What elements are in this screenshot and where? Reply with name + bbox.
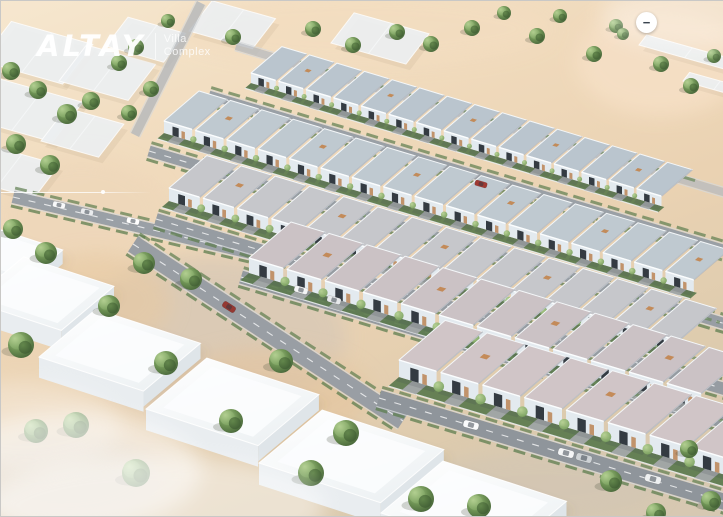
- yard-tree: [467, 144, 472, 149]
- entry-door: [494, 393, 502, 408]
- front-wood-panel: [542, 164, 545, 171]
- tree-shade: [430, 41, 438, 49]
- entry-door: [580, 249, 586, 260]
- tree: [117, 105, 137, 121]
- tree-shade: [14, 141, 24, 151]
- tree: [158, 14, 176, 28]
- front-wood-panel: [213, 141, 216, 149]
- front-wood-panel: [590, 424, 595, 436]
- front-wood-panel: [459, 140, 462, 147]
- yard-tree: [517, 406, 528, 417]
- front-wood-panel: [487, 148, 490, 155]
- yard-tree: [318, 288, 327, 297]
- front-wood-panel: [370, 188, 373, 196]
- tree: [550, 9, 568, 23]
- front-wood-panel: [652, 272, 655, 280]
- tree-shade: [44, 249, 55, 260]
- yard-tree: [629, 268, 635, 274]
- entry-door: [619, 430, 627, 445]
- yard-tree: [472, 221, 478, 227]
- entry-door: [369, 111, 375, 120]
- front-wood-panel: [188, 199, 192, 208]
- tree-shade: [36, 87, 45, 96]
- front-wood-panel: [346, 293, 350, 303]
- entry-door: [703, 455, 711, 470]
- entry-door: [517, 230, 523, 241]
- front-wood-panel: [422, 374, 427, 386]
- front-wood-panel: [569, 173, 572, 180]
- front-wood-panel: [625, 189, 628, 196]
- yard-tree: [347, 183, 353, 189]
- front-wood-panel: [384, 305, 388, 315]
- tree-shade: [477, 502, 489, 514]
- front-wood-panel: [548, 411, 553, 423]
- entry-door: [173, 127, 179, 138]
- front-wood-panel: [377, 115, 380, 122]
- tree-shade: [312, 26, 320, 34]
- entry-door: [617, 185, 622, 194]
- tree: [1, 134, 26, 154]
- front-wood-panel: [404, 123, 407, 130]
- tree-shade: [11, 226, 21, 236]
- tree-shade: [229, 417, 241, 429]
- tree-shade: [164, 359, 176, 371]
- yard-tree: [378, 193, 384, 199]
- yard-tree: [302, 94, 307, 99]
- front-wood-panel: [270, 270, 274, 280]
- tree-shade: [309, 469, 322, 482]
- yard-tree: [394, 311, 403, 320]
- entry-door: [549, 239, 555, 250]
- front-wood-panel: [182, 131, 185, 139]
- yard-tree: [253, 155, 259, 161]
- tree: [641, 503, 666, 516]
- front-wood-panel: [322, 98, 325, 105]
- front-wood-panel: [266, 82, 269, 89]
- front-wood-panel: [631, 437, 636, 449]
- yard-tree: [190, 136, 196, 142]
- entry-door: [578, 418, 586, 433]
- tree-shade: [660, 61, 668, 69]
- yard-tree: [577, 177, 582, 182]
- yard-tree: [266, 225, 274, 233]
- front-wood-panel: [589, 253, 592, 261]
- yard-tree: [439, 135, 444, 140]
- tree-shade: [128, 110, 136, 118]
- yard-tree: [475, 394, 486, 405]
- entry-door: [361, 183, 367, 194]
- entry-door: [267, 155, 273, 166]
- yard-tree: [357, 111, 362, 116]
- front-wood-panel: [349, 106, 352, 113]
- tree-shade: [709, 498, 719, 508]
- tree-shade: [396, 29, 404, 37]
- front-wood-panel: [464, 386, 469, 398]
- entry-door: [589, 177, 595, 186]
- front-wood-panel: [514, 156, 517, 163]
- entry-door: [392, 192, 398, 203]
- front-wood-panel: [294, 90, 297, 97]
- tree-shade: [89, 98, 98, 107]
- entry-door: [235, 145, 241, 156]
- tree-shade: [536, 33, 544, 41]
- front-wood-panel: [257, 219, 261, 228]
- tree-shade: [419, 495, 432, 508]
- tree-shade: [609, 477, 620, 488]
- site-render: [1, 1, 723, 516]
- front-wood-panel: [307, 169, 310, 177]
- front-wood-panel: [620, 263, 623, 271]
- front-wood-panel: [597, 181, 600, 188]
- tree-shade: [107, 302, 118, 313]
- tree-shade: [559, 14, 566, 21]
- entry-door: [534, 160, 540, 169]
- watermark-rule-dot: [101, 190, 105, 194]
- yard-tree: [384, 119, 389, 124]
- entry-door: [298, 164, 304, 175]
- entry-door: [536, 405, 544, 420]
- yard-tree: [550, 168, 555, 173]
- tree-shade: [713, 54, 720, 61]
- tree-shade: [9, 68, 18, 77]
- tree-shade: [189, 275, 200, 286]
- front-wood-panel: [526, 235, 529, 243]
- tree-shade: [471, 25, 479, 33]
- tree-shade: [503, 11, 510, 18]
- tree-shade: [150, 86, 158, 94]
- yard-tree: [522, 160, 527, 165]
- entry-door: [410, 368, 418, 383]
- zoom-out-button[interactable]: −: [636, 12, 657, 33]
- entry-door: [611, 258, 617, 269]
- yard-tree: [356, 300, 365, 309]
- entry-door: [486, 221, 492, 232]
- entry-door: [396, 119, 401, 128]
- tree: [78, 92, 101, 110]
- render-viewport: ALTAY Villa Complex −: [0, 0, 723, 517]
- entry-door: [286, 86, 291, 95]
- yard-tree: [494, 152, 499, 157]
- yard-tree: [222, 146, 228, 152]
- entry-door: [314, 94, 320, 103]
- front-wood-panel: [276, 159, 279, 167]
- tree-shade: [142, 259, 153, 270]
- tree-shade: [279, 357, 291, 369]
- front-wood-panel: [495, 225, 498, 233]
- front-wood-panel: [683, 282, 686, 290]
- yard-tree: [559, 419, 570, 430]
- yard-tree: [329, 102, 334, 107]
- front-wood-panel: [432, 206, 435, 214]
- entry-door: [479, 144, 485, 153]
- entry-door: [451, 136, 456, 145]
- front-wood-panel: [558, 244, 561, 252]
- tree-shade: [593, 51, 601, 59]
- front-wood-panel: [338, 178, 341, 186]
- tree-shade: [118, 60, 126, 68]
- yard-tree: [197, 204, 205, 212]
- tree-shade: [690, 83, 698, 91]
- yard-tree: [441, 211, 447, 217]
- front-wood-panel: [222, 209, 226, 218]
- yard-tree: [598, 258, 604, 264]
- tree-shade: [167, 19, 174, 26]
- tree-shade: [48, 162, 58, 172]
- tree-shade: [135, 44, 143, 52]
- front-wood-panel: [244, 150, 247, 158]
- entry-door: [452, 380, 460, 395]
- yard-tree: [643, 444, 654, 455]
- yard-tree: [280, 277, 289, 286]
- tree-shade: [344, 429, 357, 442]
- yard-tree: [632, 193, 637, 198]
- yard-tree: [504, 230, 510, 236]
- entry-door: [423, 202, 429, 213]
- front-wood-panel: [308, 282, 312, 292]
- front-wood-panel: [506, 399, 511, 411]
- yard-tree: [316, 174, 322, 180]
- front-wood-panel: [464, 216, 467, 224]
- watermark-rule-line: [1, 192, 151, 193]
- entry-door: [643, 268, 649, 279]
- yard-tree: [412, 127, 417, 132]
- yard-tree: [434, 381, 445, 392]
- front-wood-panel: [422, 316, 426, 326]
- yard-tree: [274, 86, 279, 91]
- tree-shade: [352, 42, 360, 50]
- entry-door: [661, 443, 669, 458]
- minus-icon: −: [643, 16, 651, 29]
- yard-tree: [232, 215, 240, 223]
- front-wood-panel: [432, 131, 435, 138]
- yard-tree: [410, 202, 416, 208]
- entry-door: [674, 277, 680, 288]
- tree-shade: [19, 341, 32, 354]
- front-wood-panel: [652, 197, 655, 204]
- entry-door: [373, 299, 381, 313]
- yard-tree: [684, 456, 695, 467]
- yard-tree: [284, 164, 290, 170]
- tree-shade: [687, 446, 696, 455]
- entry-door: [455, 211, 461, 222]
- yard-tree: [601, 431, 612, 442]
- yard-tree: [605, 185, 610, 190]
- tree-shade: [65, 111, 75, 121]
- entry-door: [204, 136, 210, 147]
- yard-tree: [566, 249, 572, 255]
- front-wood-panel: [715, 462, 720, 474]
- front-wood-panel: [401, 197, 404, 205]
- yard-tree: [660, 277, 666, 283]
- tree-shade: [232, 34, 240, 42]
- entry-door: [259, 265, 267, 279]
- tree: [2, 332, 35, 358]
- entry-door: [411, 310, 419, 324]
- yard-tree: [535, 240, 541, 246]
- entry-door: [329, 174, 335, 185]
